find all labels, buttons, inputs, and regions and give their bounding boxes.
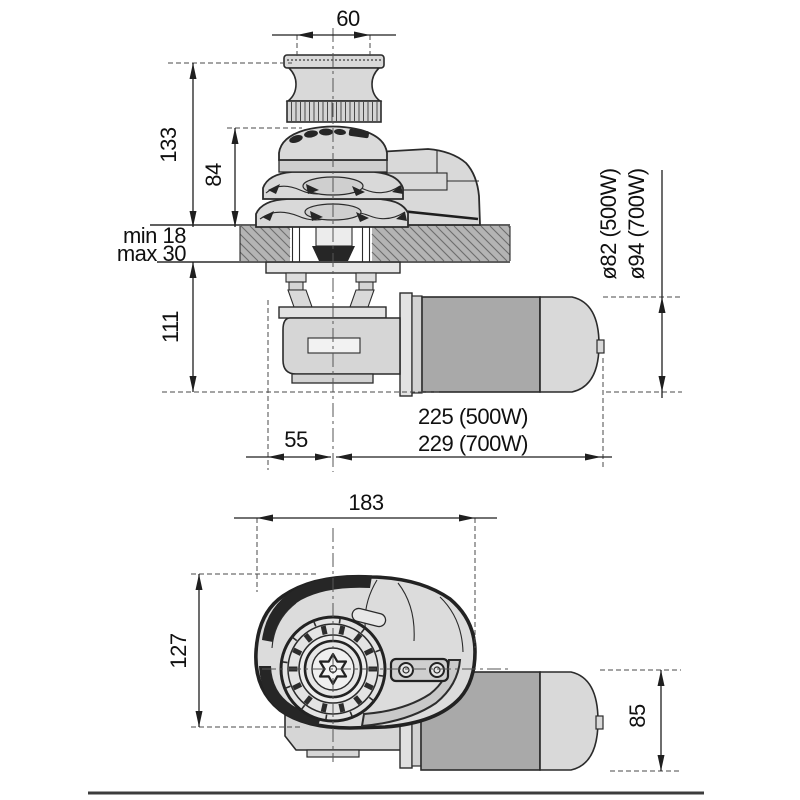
dim-center-offset: 55	[284, 427, 308, 452]
dim-overall-height: 133	[156, 127, 181, 162]
dim-front-height: 127	[166, 633, 191, 668]
gypsy-chainwheel	[256, 127, 408, 228]
dim-length-700w: 229 (700W)	[418, 431, 528, 456]
dim-length-500w: 225 (500W)	[418, 404, 528, 429]
motor-terminal-nub	[597, 340, 604, 353]
side-motor	[400, 293, 604, 396]
dim-deck-max: max 30	[117, 241, 186, 266]
capstan-drum	[284, 55, 384, 122]
stud-nut	[356, 273, 376, 282]
front-bolt-plate	[391, 659, 448, 681]
drawing-canvas: 60 133 84 min 18 max 30 111 55 225 (500W…	[0, 0, 800, 800]
dim-below-deck-height: 111	[158, 311, 183, 343]
dim-motor-diameter-500w: ø82 (500W)	[596, 168, 621, 279]
stud-nut	[286, 273, 306, 282]
dim-motor-height: 85	[625, 704, 650, 728]
shaft-through-deck	[316, 225, 352, 246]
gearbox-slot	[308, 338, 360, 353]
dim-motor-diameter-700w: ø94 (700W)	[624, 168, 649, 279]
dim-front-width: 183	[348, 490, 383, 515]
motor-terminal-nub	[596, 716, 603, 729]
deck-section	[150, 225, 510, 262]
technical-drawing-page: 60 133 84 min 18 max 30 111 55 225 (500W…	[0, 0, 800, 800]
dim-gypsy-height: 84	[201, 163, 226, 187]
dim-capstan-width: 60	[336, 6, 360, 31]
